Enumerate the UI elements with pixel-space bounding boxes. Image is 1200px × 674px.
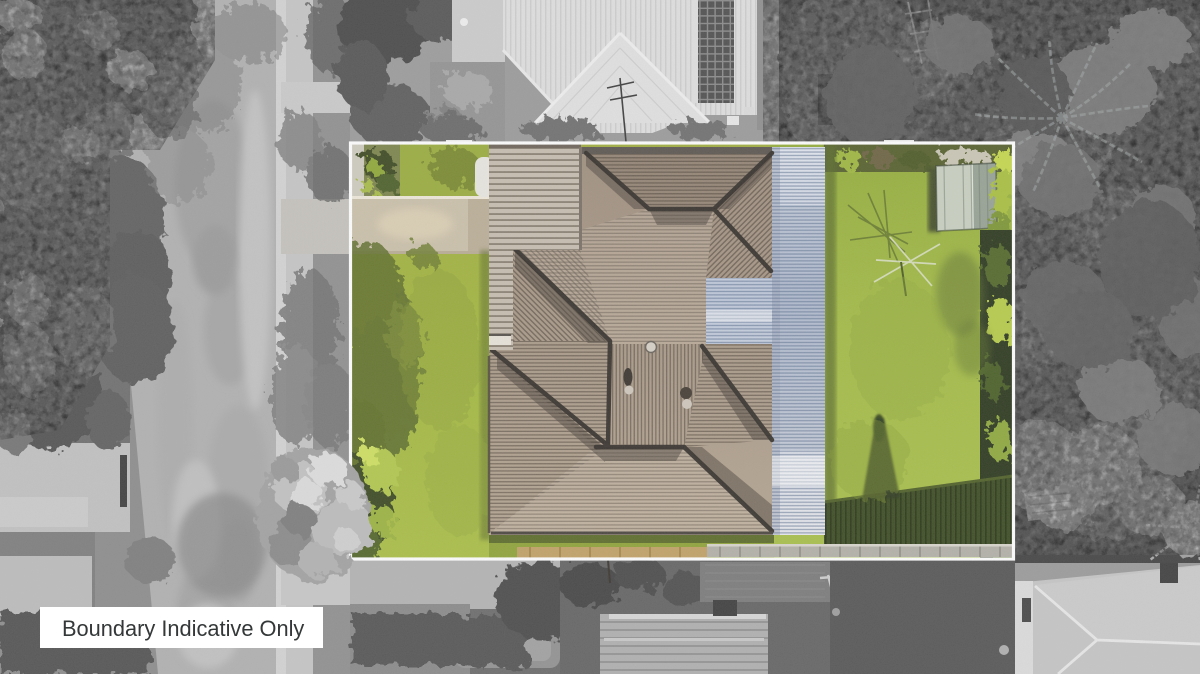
svg-text:Boundary Indicative Only: Boundary Indicative Only — [62, 616, 304, 641]
